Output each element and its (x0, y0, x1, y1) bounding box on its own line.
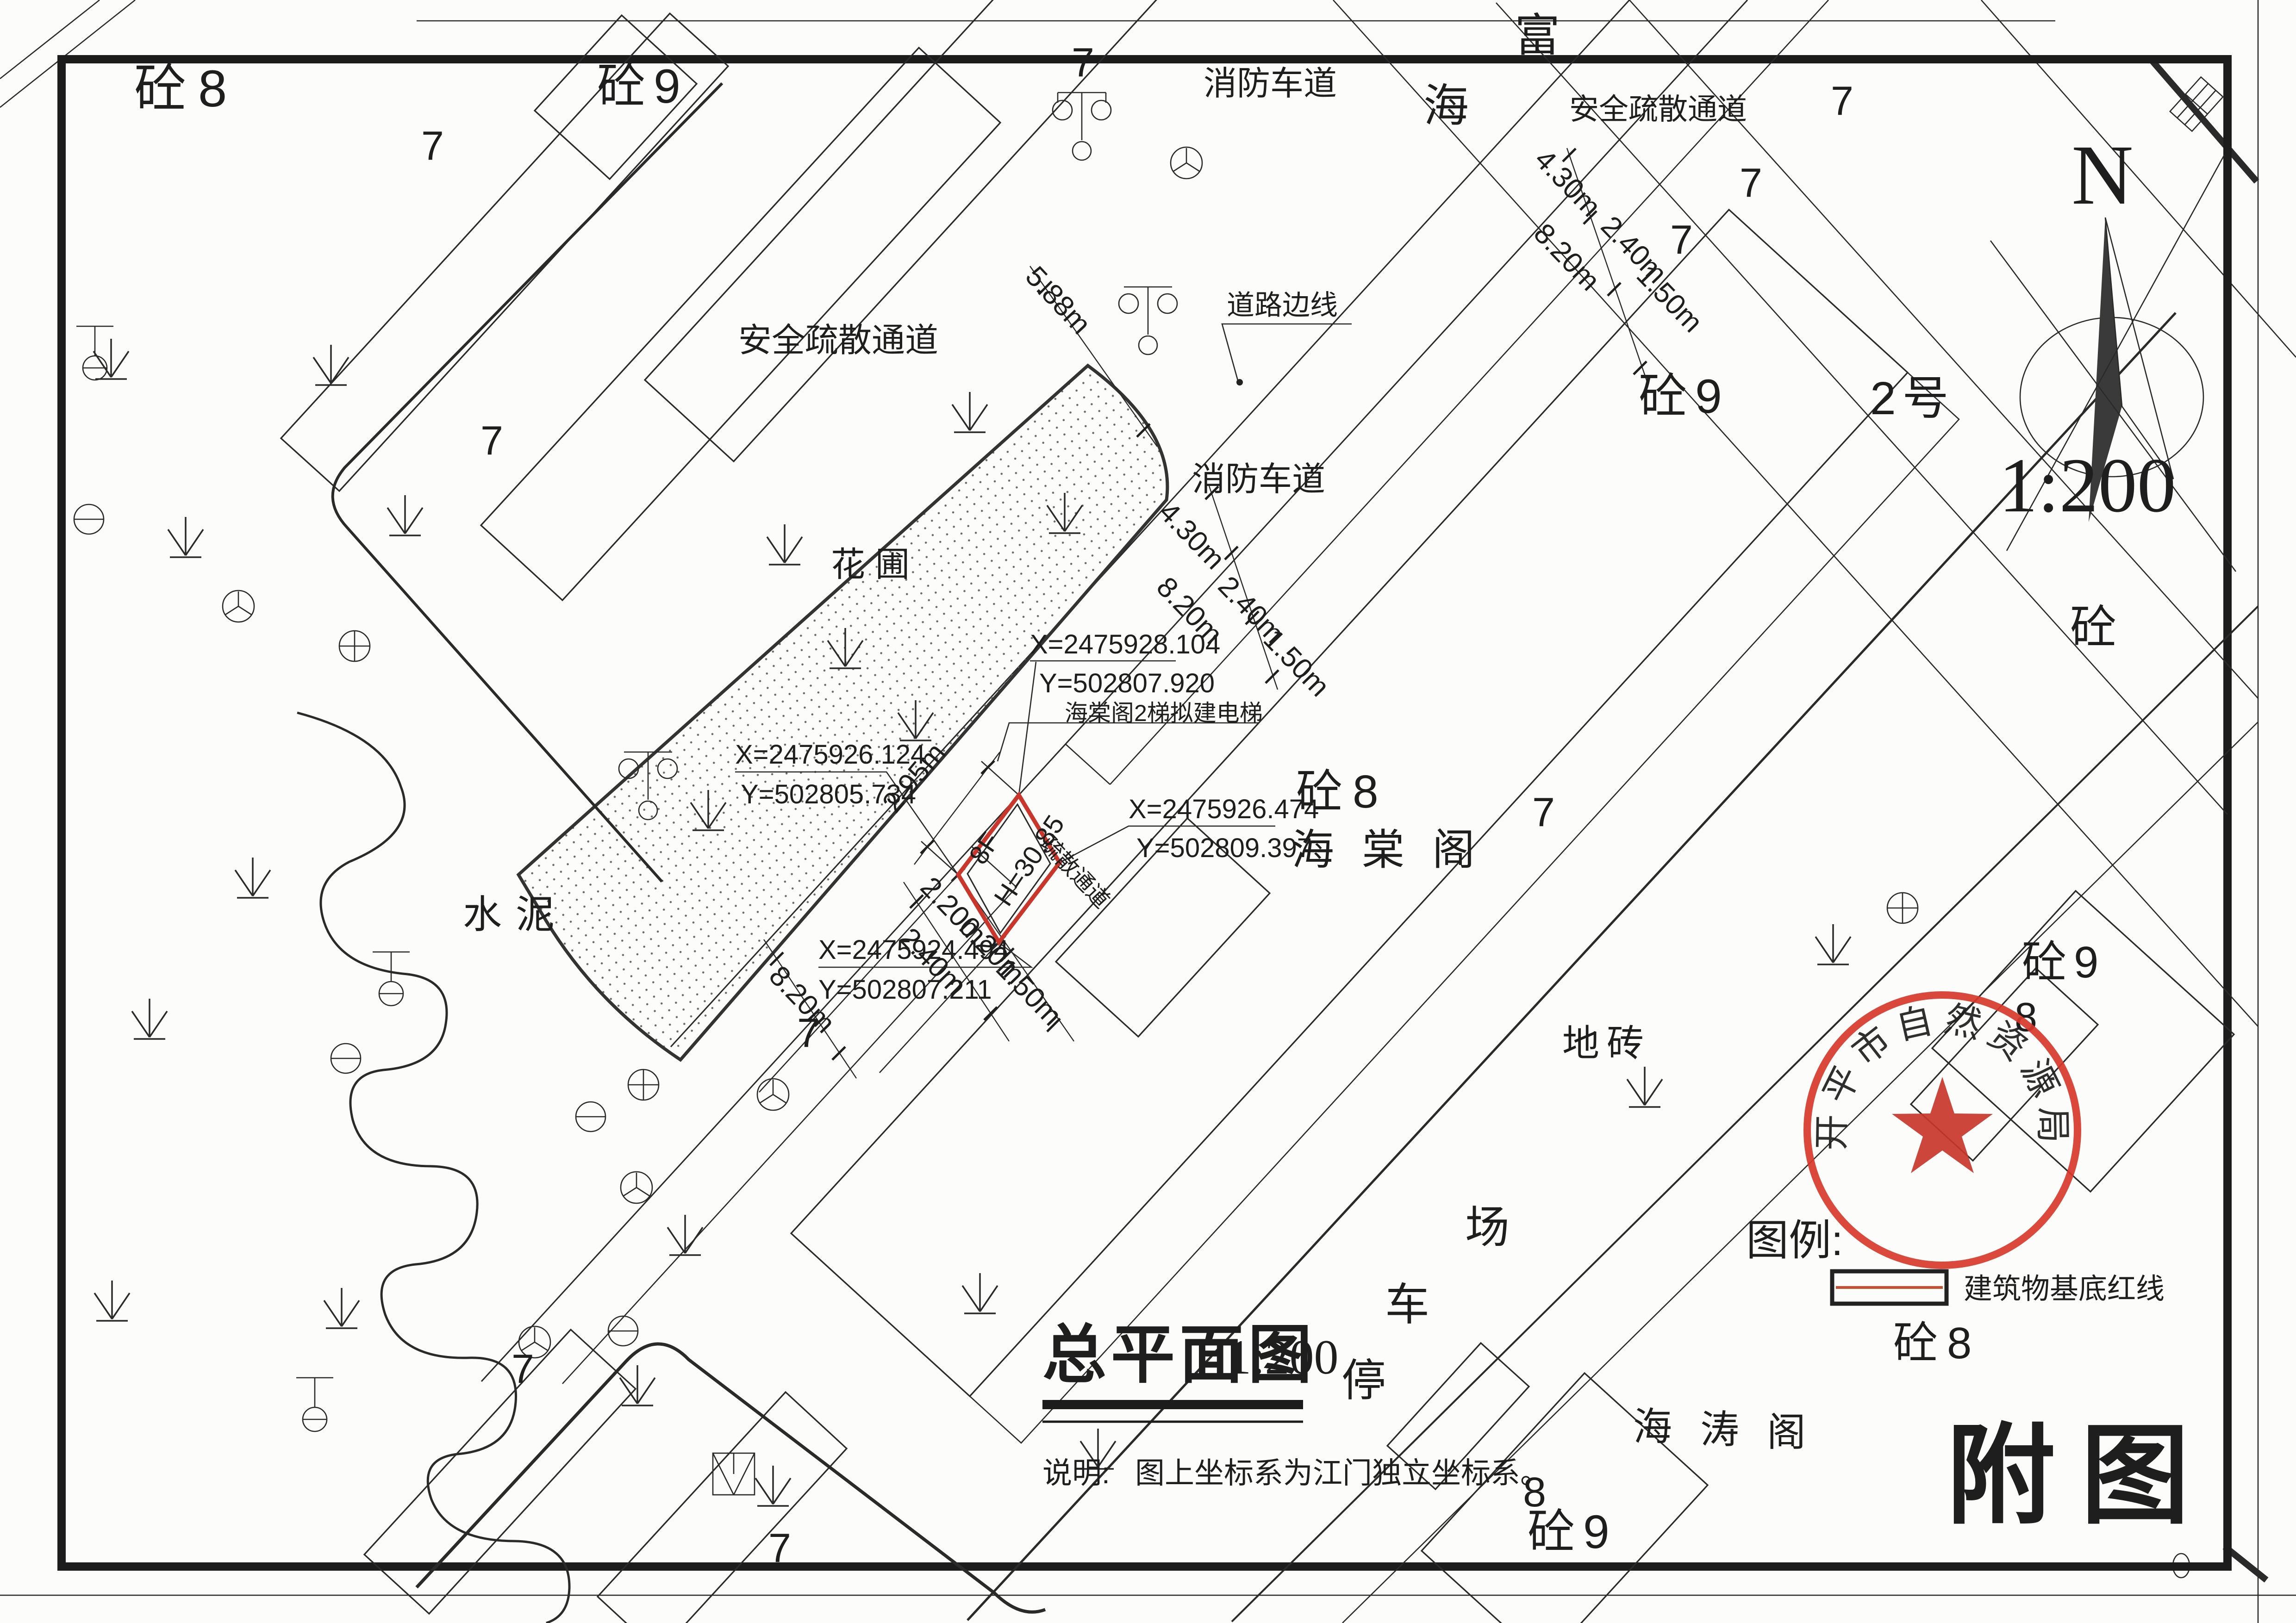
story-count-7: 7 (1072, 39, 1094, 85)
note-label: 说明: (1042, 1456, 1110, 1490)
label-tong8-legend: 砼8 (1893, 1318, 1981, 1368)
label-cement: 水泥 (463, 893, 568, 936)
story-count-7: 7 (1532, 789, 1555, 835)
dim-4-30-mid: 4.30m (1153, 496, 1231, 576)
lamp-icon (1119, 287, 1177, 354)
label-safe-passage-left: 安全疏散通道 (738, 322, 938, 359)
corner-mark: 附图 (1947, 1417, 2215, 1537)
coord-bottom-x: X=2475924.494 (818, 935, 1009, 965)
coord-right-y: Y=502809.397 (1136, 833, 1312, 863)
note-text: 图上坐标系为江门独立坐标系。 (1135, 1456, 1550, 1490)
story-count-7: 7 (421, 123, 444, 168)
coord-top-x: X=2475928.104 (1030, 629, 1220, 659)
label-tong8-topleft: 砼8 (134, 60, 239, 118)
title-block: 总平面图 1:200 说明: 图上坐标系为江门独立坐标系。 (1042, 1319, 1550, 1490)
label-tong9-topright: 砼9 (1639, 370, 1730, 423)
story-count-7: 7 (480, 417, 503, 463)
legend: 图例: 建筑物基底红线 砼8 (1746, 1217, 2165, 1368)
label-tong-right: 砼 (2070, 602, 2116, 653)
tree-icon (1171, 147, 1202, 179)
tree-icon (223, 591, 254, 622)
label-tong9-topleft: 砼9 (597, 60, 689, 113)
label-road-edge: 道路边线 (1227, 290, 1338, 321)
manhole-icon (331, 1044, 361, 1073)
north-compass: N 1:200 (1990, 128, 2236, 572)
registry-mark (2170, 77, 2223, 131)
compass-n-label: N (2071, 128, 2134, 223)
label-flower-bed: 花圃 (831, 545, 920, 584)
valve-icon (1887, 893, 1918, 923)
legend-label: 图例: (1746, 1217, 1843, 1264)
label-street-fu: 富 (1515, 10, 1560, 61)
compass-scale: 1:200 (1999, 442, 2176, 529)
official-stamp: 开平市自然资源局 (1807, 995, 2078, 1265)
dim-5-88: 5.88m (1019, 260, 1097, 340)
lamp-icon (373, 952, 410, 1006)
site-plan-drawing: 砼8 消防车道 海 富 安全疏散通道 砼9 砼9 2号 砼 道路边线 消防车道 … (0, 0, 2296, 1623)
label-parking-3: 场 (1465, 1203, 1510, 1252)
label-fire-lane-mid: 消防车道 (1192, 461, 1325, 498)
manhole-icon (576, 1102, 605, 1132)
valve-icon (339, 631, 370, 661)
coord-left-x: X=2475926.124 (735, 740, 925, 770)
label-parking-2: 车 (1385, 1280, 1429, 1330)
coord-right-x: X=2475926.474 (1129, 794, 1319, 824)
utility-box-icon (713, 1453, 755, 1495)
valve-icon (628, 1070, 659, 1100)
legend-item-label: 建筑物基底红线 (1964, 1273, 2165, 1305)
manhole-icon (608, 1316, 638, 1346)
label-safe-passage-topright: 安全疏散通道 (1569, 93, 1747, 126)
cement-boundary (297, 713, 569, 1623)
site-symbols (74, 93, 1918, 1495)
label-block-no2: 2号 (1870, 373, 1955, 424)
proposed-passage: 疏散通道 (1036, 831, 1114, 913)
drawing-title-scale: 1:200 (1227, 1330, 1338, 1384)
label-haitang: 海棠阁 (1291, 827, 1503, 874)
proposed-callout: 海棠阁2梯拟建电梯 (1065, 700, 1263, 726)
story-count-7: 7 (768, 1525, 791, 1571)
proposed-floors: 8F (963, 827, 1006, 870)
label-street-hai: 海 (1423, 80, 1469, 131)
label-haitao-1: 海 (1633, 1405, 1672, 1449)
label-parking-1: 停 (1341, 1356, 1386, 1405)
scanned-site-plan-sheet: 砼8 消防车道 海 富 安全疏散通道 砼9 砼9 2号 砼 道路边线 消防车道 … (0, 0, 2296, 1623)
label-tong9-right: 砼9 (2022, 938, 2106, 987)
label-floor-tile: 地砖 (1562, 1023, 1651, 1064)
stamp-star (1892, 1077, 1993, 1173)
coord-left-y: Y=502805.734 (741, 779, 916, 809)
label-haitao-2: 涛 (1700, 1408, 1739, 1451)
story-count-7: 7 (1740, 160, 1762, 205)
label-fire-lane-top: 消防车道 (1204, 65, 1337, 102)
coord-top-y: Y=502807.920 (1039, 668, 1215, 698)
lamp-icon (296, 1378, 333, 1431)
story-count-7: 7 (512, 1346, 534, 1392)
tree-icon (621, 1172, 652, 1203)
label-haitao-3: 阁 (1767, 1411, 1806, 1454)
coord-bottom-y: Y=502807.211 (818, 975, 992, 1005)
story-count-7: 7 (1670, 217, 1693, 262)
tree-icon (757, 1079, 789, 1110)
dim-1-50-tr: 1.50m (1630, 259, 1709, 339)
manhole-icon (74, 504, 104, 534)
story-count-7: 7 (1831, 78, 1853, 124)
